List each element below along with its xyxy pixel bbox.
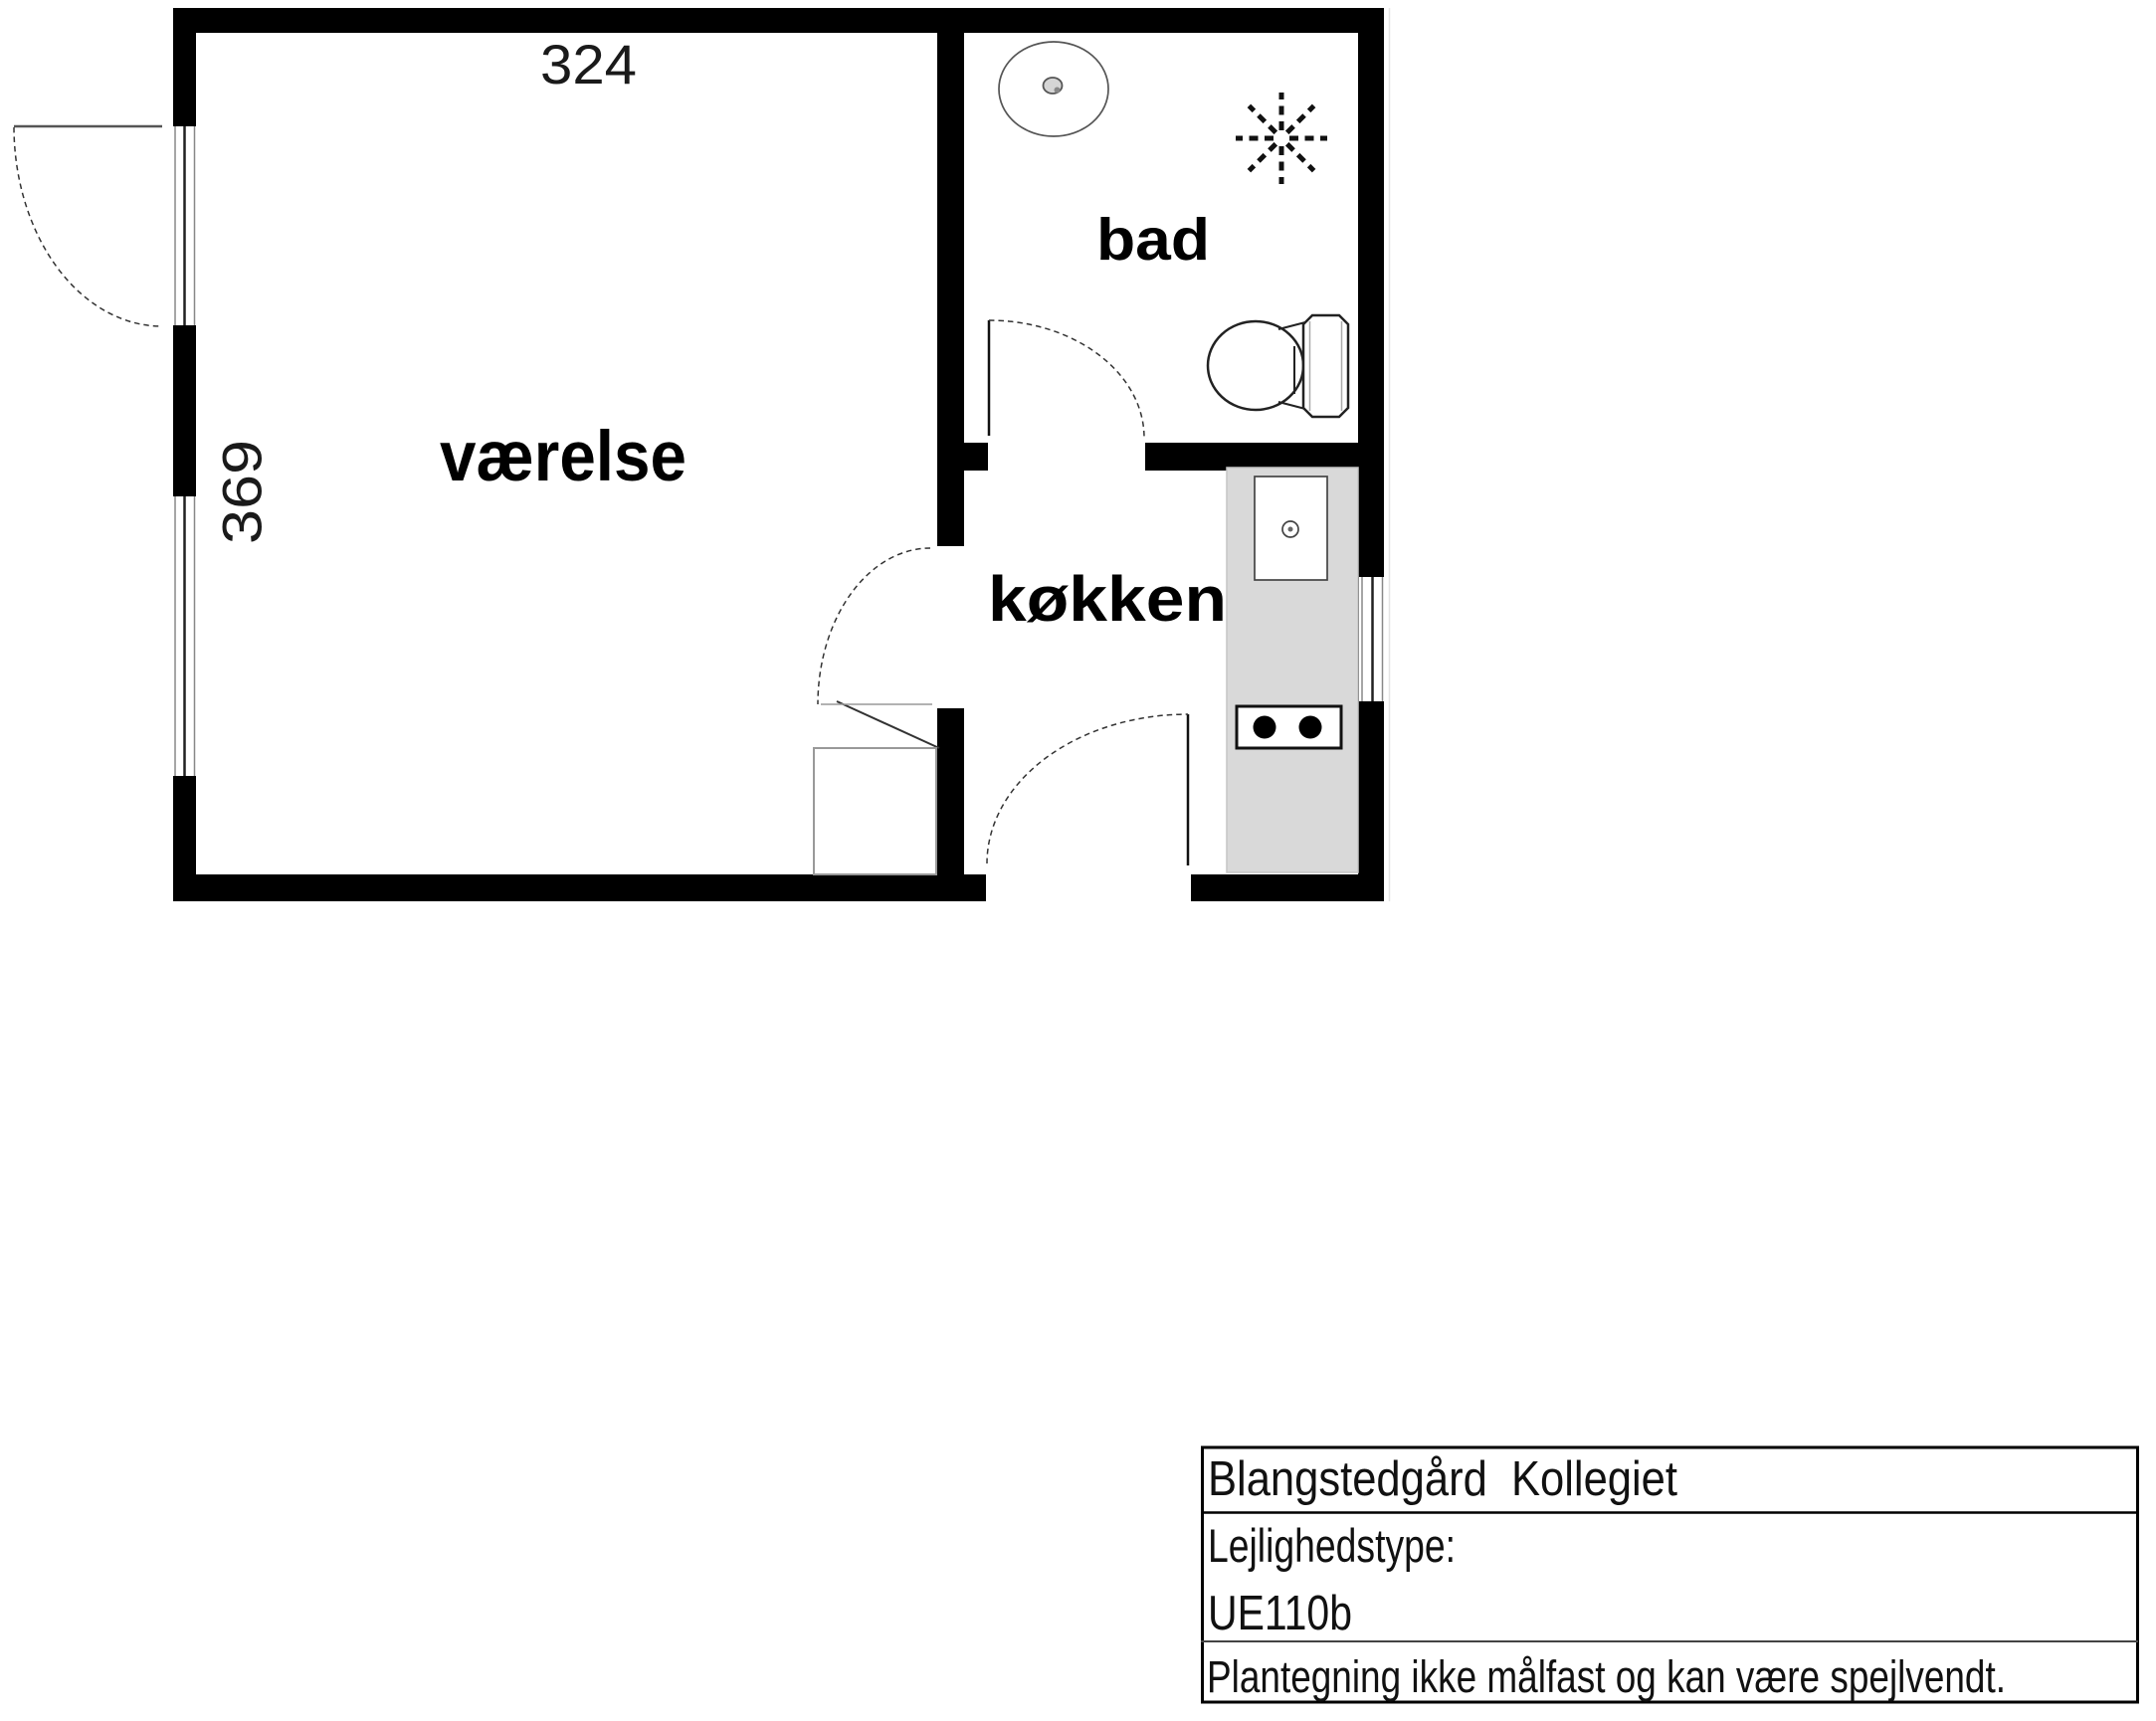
svg-text:Plantegning ikke målfast og ka: Plantegning ikke målfast og kan være spe… — [1207, 1651, 2006, 1702]
svg-text:Lejlighedstype:: Lejlighedstype: — [1208, 1519, 1456, 1572]
svg-text:værelse: værelse — [440, 418, 686, 496]
svg-text:324: 324 — [540, 33, 637, 96]
svg-text:køkken: køkken — [988, 563, 1227, 635]
svg-text:bad: bad — [1096, 207, 1210, 273]
svg-text:Blangstedgård Kollegiet: Blangstedgård Kollegiet — [1208, 1452, 1677, 1506]
svg-text:UE110b: UE110b — [1208, 1587, 1352, 1640]
svg-text:369: 369 — [211, 440, 274, 544]
